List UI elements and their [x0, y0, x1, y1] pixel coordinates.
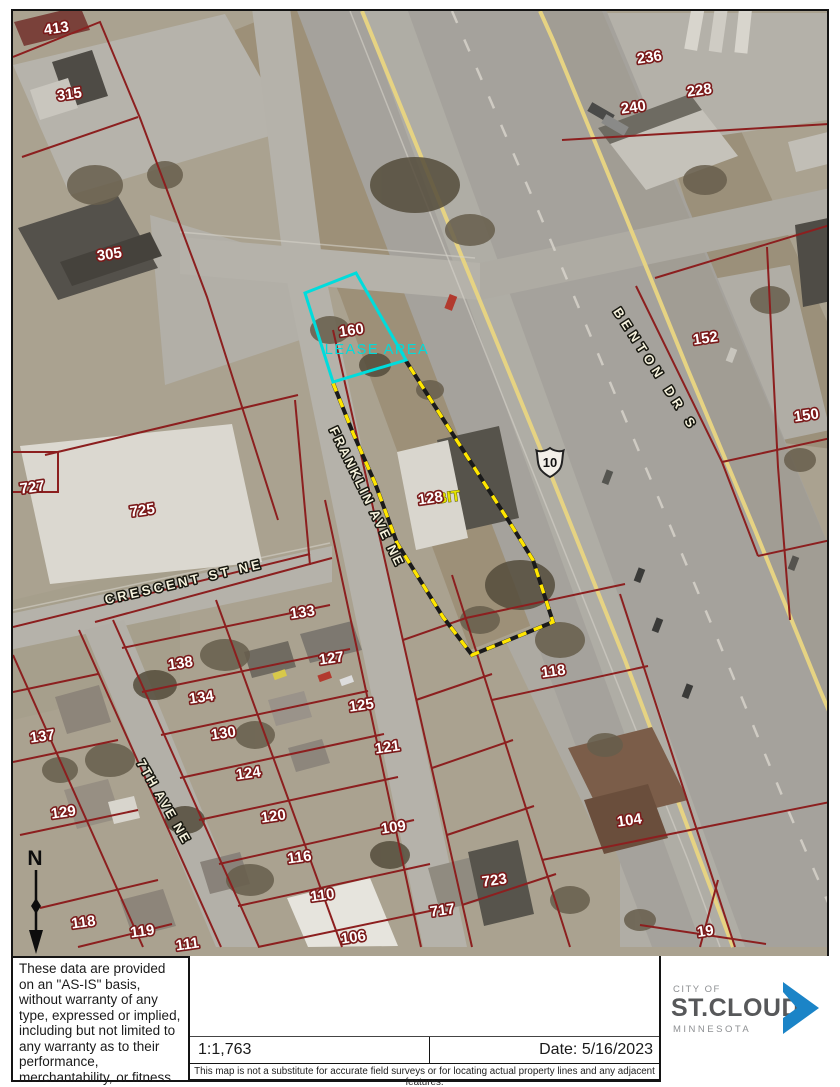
parcel-label: 116	[286, 847, 312, 867]
parcel-label: 137	[29, 726, 56, 746]
north-label: N	[27, 847, 42, 870]
parcel-label: 138	[167, 653, 194, 673]
parcel-label: 727	[19, 477, 46, 497]
footer-middle: 1:1,763 Date: 5/16/2023 This map is not …	[190, 956, 661, 1082]
parcel-label: 160	[338, 320, 365, 340]
parcel-label: 119	[129, 921, 155, 941]
map-frame: LEASE AREA CRESCENT ST NEFRANKLIN AVE NE…	[11, 9, 829, 958]
parcel-label: 134	[188, 687, 216, 707]
scale-value: 1:1,763	[190, 1037, 430, 1063]
logo-state: MINNESOTA	[673, 1024, 751, 1035]
parcel-label: 150	[793, 405, 820, 425]
parcel-label: 130	[210, 723, 237, 743]
parcel-label: 128	[417, 488, 444, 508]
parcel-label: 228	[686, 80, 713, 100]
parcel-label: 305	[96, 244, 123, 264]
parcel-label: 111	[175, 934, 201, 954]
parcel-label: 109	[380, 817, 407, 837]
parcel-label: 118	[540, 661, 566, 681]
parcel-label: 129	[50, 802, 77, 822]
parcel-label: 236	[636, 47, 663, 67]
parcel-label: 120	[260, 806, 287, 826]
parcel-label: 723	[481, 870, 508, 890]
logo-chevron-icon	[779, 980, 821, 1036]
parcel-label: 118	[70, 912, 96, 932]
disclaimer-text: These data are provided on an "AS-IS" ba…	[11, 956, 190, 1082]
title-block: These data are provided on an "AS-IS" ba…	[11, 956, 829, 1082]
parcel-label: 19	[696, 922, 715, 941]
parcel-label: 125	[348, 695, 375, 715]
empty-cell	[190, 956, 659, 1037]
parcel-label: 725	[129, 500, 156, 520]
aerial-map: LEASE AREA CRESCENT ST NEFRANKLIN AVE NE…	[13, 11, 827, 956]
city-logo: CITY OF ST.CLOUD MINNESOTA	[661, 956, 829, 1082]
parcel-label: 104	[616, 810, 644, 830]
parcel-label: 110	[309, 885, 335, 905]
date-value: Date: 5/16/2023	[430, 1037, 659, 1063]
parcel-label: 240	[620, 97, 647, 117]
parcel-label: 133	[289, 602, 316, 622]
parcel-label: 106	[340, 927, 367, 947]
map-note: This map is not a substitute for accurat…	[190, 1064, 659, 1082]
highway-number: 10	[543, 455, 557, 470]
aerial-imagery	[13, 11, 827, 956]
parcel-label: 152	[692, 328, 719, 348]
parcel-label: 315	[56, 84, 83, 104]
lease-area-label: LEASE AREA	[325, 342, 429, 358]
parcel-label: 717	[429, 900, 456, 920]
scale-date-row: 1:1,763 Date: 5/16/2023	[190, 1037, 659, 1064]
parcel-label: 413	[43, 18, 70, 38]
parcel-label: 121	[374, 737, 401, 757]
parcel-label: 127	[318, 648, 345, 668]
map-sheet: LEASE AREA CRESCENT ST NEFRANKLIN AVE NE…	[0, 0, 840, 1087]
parcel-label: 124	[235, 763, 263, 783]
